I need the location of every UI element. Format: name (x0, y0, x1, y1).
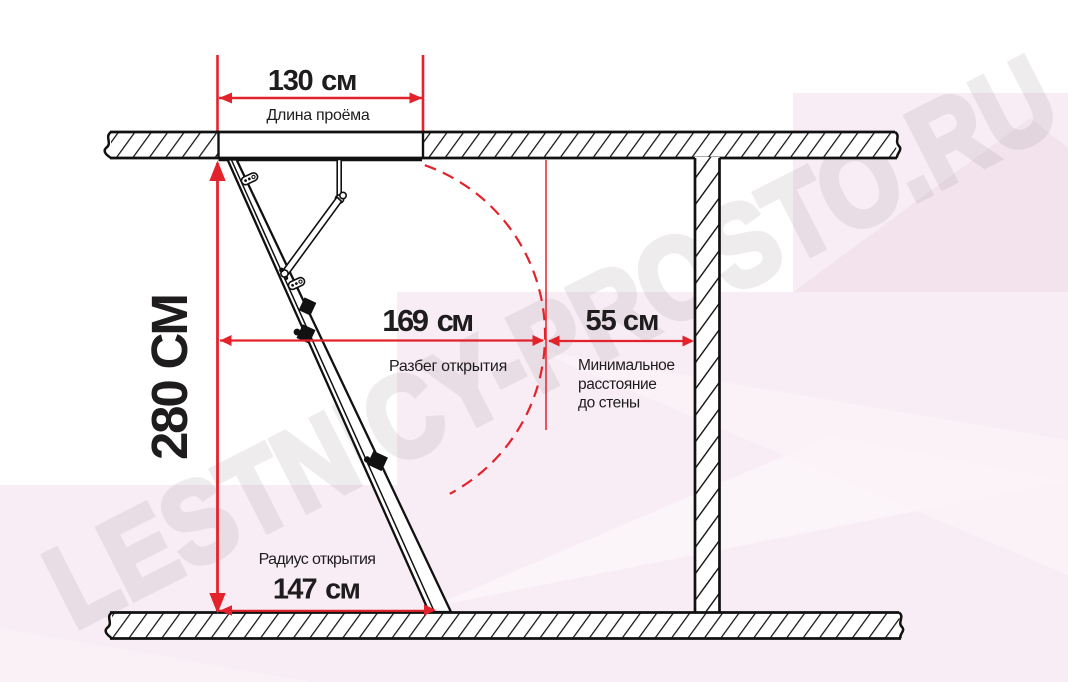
svg-text:147 см: 147 см (273, 574, 360, 606)
svg-text:расстояние: расстояние (578, 376, 657, 393)
svg-text:Минимальное: Минимальное (578, 357, 675, 374)
svg-text:до стены: до стены (578, 395, 640, 412)
svg-text:55 см: 55 см (586, 305, 659, 337)
svg-text:169 см: 169 см (382, 303, 472, 338)
svg-text:Разбег открытия: Разбег открытия (389, 358, 507, 375)
svg-text:Радиус открытия: Радиус открытия (259, 551, 376, 568)
svg-text:130 см: 130 см (268, 65, 356, 97)
svg-text:280 СМ: 280 СМ (141, 295, 198, 460)
svg-text:Длина проёма: Длина проёма (267, 107, 370, 124)
